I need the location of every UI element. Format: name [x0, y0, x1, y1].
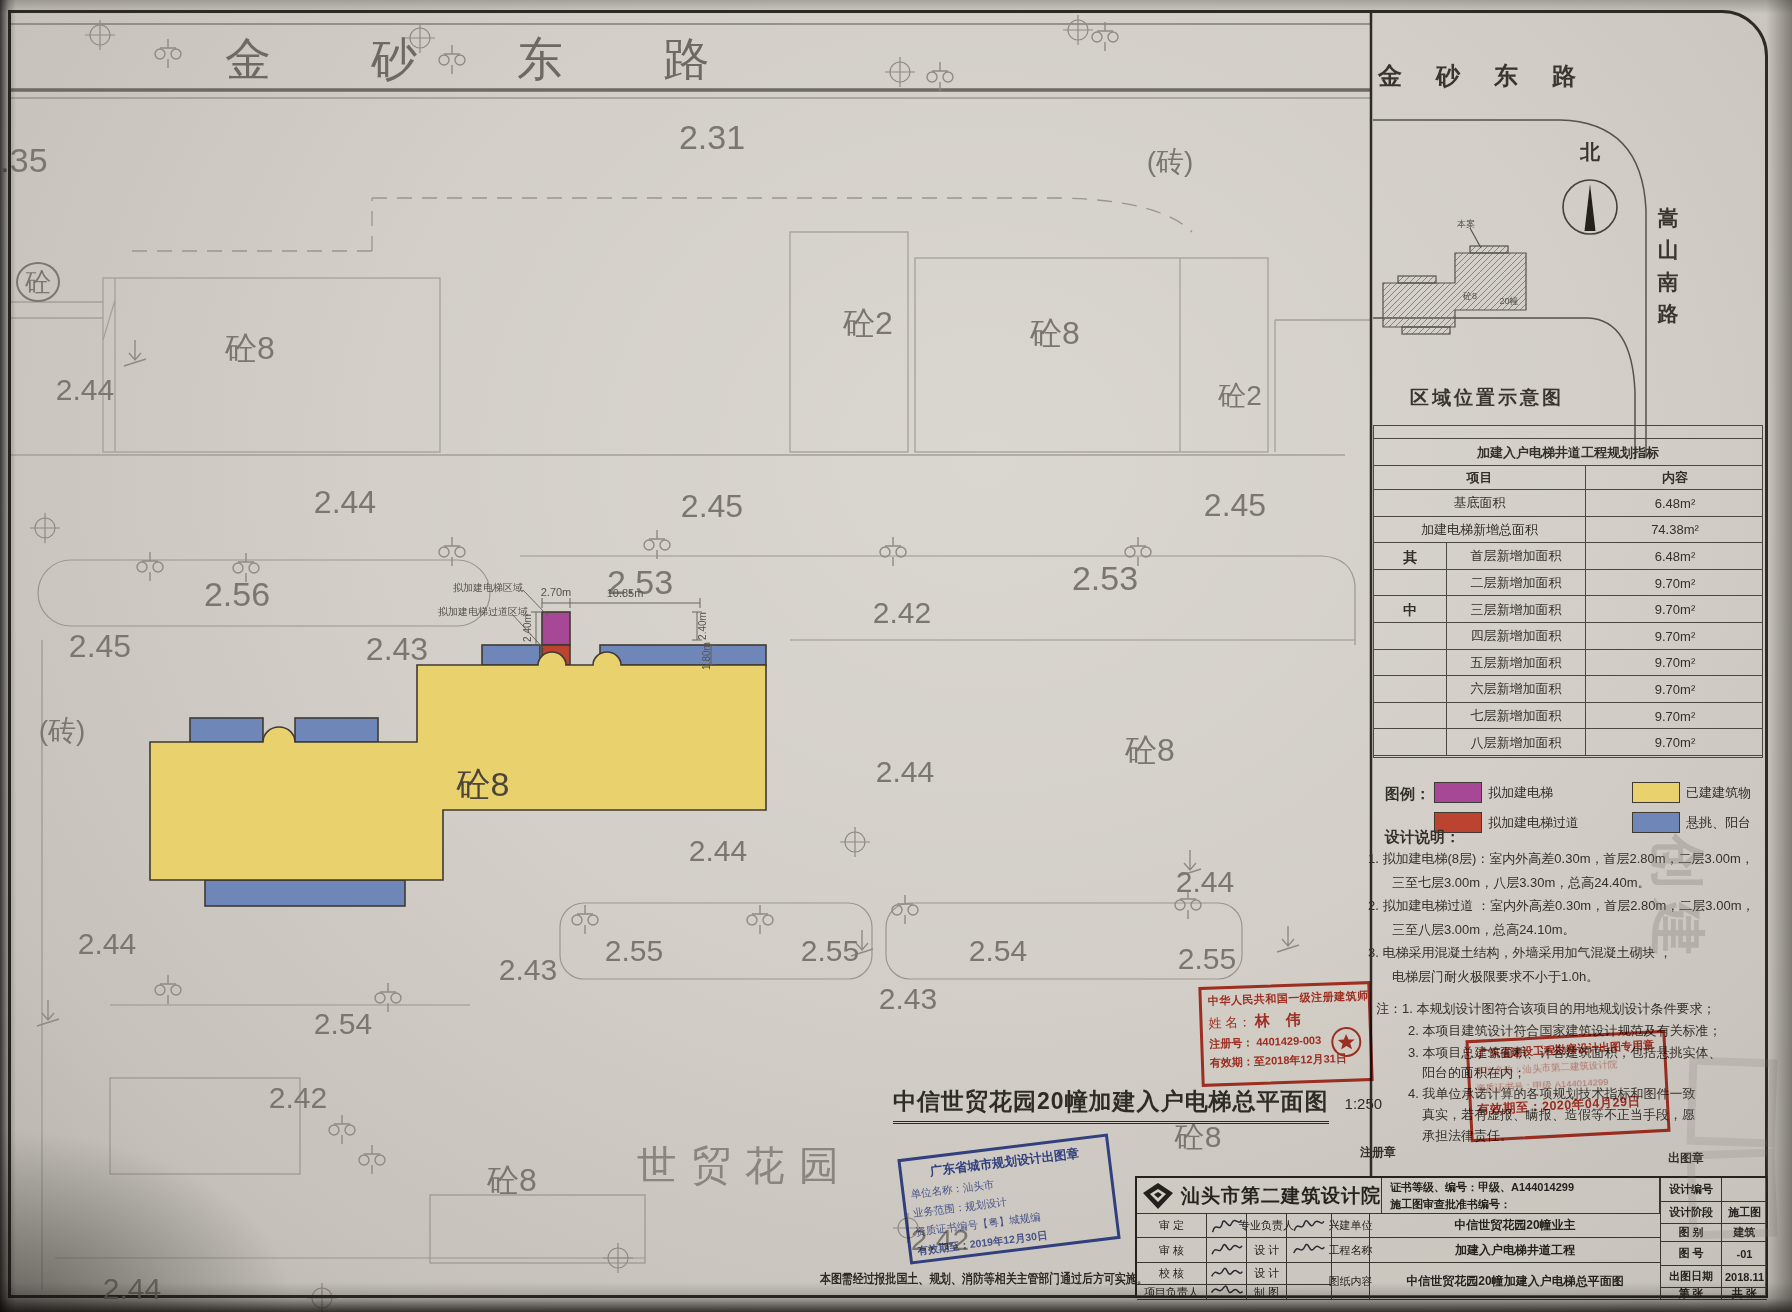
architect-registration-stamp: 中华人民共和国一级注册建筑师 姓 名： 林 伟 注册号： 4401429-003… [1198, 981, 1373, 1087]
elevation-label: 2.45 [69, 630, 131, 662]
project-field-label: 图纸内容 [1332, 1263, 1370, 1300]
project-field-label: 工程名称 [1332, 1238, 1370, 1263]
tblock-right-label: 第 张 [1660, 1288, 1722, 1300]
project-field-value: 中信世贸花园20幢加建入户电梯总平面图 [1370, 1263, 1660, 1300]
inset-site-ref: 本案 [1457, 220, 1475, 229]
table-group-label: 中 [1388, 602, 1432, 620]
stamp-line: 中华人民共和国一级注册建筑师 [1208, 988, 1362, 1008]
table-value-cell: 6.48m² [1586, 490, 1764, 517]
table-value-cell: 9.70m² [1586, 676, 1764, 703]
review-line: 施工图审查批准书编号： [1390, 1197, 1511, 1212]
design-note-line: 2. 拟加建电梯过道 ：室内外高差0.30m，首层2.80m，二层3.00m， [1368, 899, 1754, 912]
signature-scribble [1291, 1216, 1327, 1236]
elevation-label: 2.54 [314, 1009, 372, 1039]
col-header-item: 项目 [1374, 466, 1586, 490]
table-value-cell: 74.38m² [1586, 517, 1764, 544]
table-top-band [1374, 426, 1762, 439]
building-label: 砼8 [1125, 734, 1175, 766]
tblock-right-value [1722, 1178, 1767, 1202]
approval-note: 本图需经过报批国土、规划、消防等相关主管部门通过后方可实施。 [820, 1270, 1148, 1288]
elevation-label: 2.45 [681, 490, 743, 522]
inset-caption: 区域位置示意图 [1410, 388, 1564, 407]
elevation-label: 2.31 [679, 120, 745, 154]
approver-role-label: 审 核 [1137, 1238, 1207, 1263]
legend-swatch [1632, 782, 1680, 803]
legend-label: 拟加建电梯过道 [1488, 812, 1579, 833]
elevation-label: 2.44 [1176, 867, 1234, 897]
building-label: 砼8 [1175, 1122, 1222, 1152]
elevation-label: 2.56 [204, 577, 270, 611]
table-value-cell: 9.70m² [1586, 596, 1764, 623]
signature-scribble [1291, 1240, 1327, 1260]
table-row: 七层新增加面积9.70m² [1374, 703, 1762, 730]
signature-cell [1287, 1214, 1332, 1238]
elevation-label: 2.43 [366, 633, 428, 665]
dimension-label: 10.85m [607, 588, 644, 599]
elevation-label: 2.44 [314, 486, 376, 518]
table-row: 六层新增加面积9.70m² [1374, 676, 1762, 703]
stamp-validity: 有效期至：2020年04月29日 [1477, 1092, 1662, 1119]
registration-seal-caption: 注册章 [1360, 1146, 1396, 1158]
elevation-label: 2.44 [876, 757, 934, 787]
design-note-line: 电梯层门耐火极限要求不小于1.0h。 [1392, 970, 1599, 983]
signature-cell [1207, 1238, 1247, 1263]
elevation-label: 2.42 [873, 598, 931, 628]
tblock-right-value: 施工图 [1722, 1202, 1767, 1224]
table-value-cell: 9.70m² [1586, 570, 1764, 597]
table-row: 四层新增加面积9.70m² [1374, 623, 1762, 650]
table-item-cell: 六层新增加面积 [1446, 676, 1586, 703]
approver-role-label: 校 核 [1137, 1263, 1207, 1285]
signature-scribble [1209, 1240, 1245, 1260]
elevation-label: 2.42 [269, 1083, 327, 1113]
table-value-cell: 9.70m² [1586, 703, 1764, 730]
area-annotation: 拟加建电梯过道区域 [438, 607, 528, 617]
table-header-row: 项目 内容 [1374, 466, 1762, 490]
building-label: 砼8 [1030, 317, 1080, 349]
table-value-cell: 6.48m² [1586, 543, 1764, 570]
legend-swatch [1632, 812, 1680, 833]
approver-role-label: 项目负责人 [1137, 1285, 1207, 1300]
table-item-cell: 八层新增加面积 [1446, 729, 1586, 756]
design-note-line: 3. 电梯采用混凝土结构，外墙采用加气混凝土砌块 ， [1368, 946, 1672, 959]
table-item-cell: 加建电梯新增总面积 [1374, 517, 1586, 544]
cert-line: 证书等级、编号：甲级、A144014299 [1390, 1180, 1574, 1195]
tblock-right-value: -01 [1722, 1242, 1767, 1266]
round-seal-icon [1329, 1024, 1364, 1059]
tblock-right-label: 图 别 [1660, 1224, 1722, 1242]
indicator-table: 加建入户电梯井道工程规划指标 项目 内容 基底面积6.48m²加建电梯新增总面积… [1373, 425, 1763, 758]
tblock-right-label: 图 号 [1660, 1242, 1722, 1266]
table-item-cell: 基底面积 [1374, 490, 1586, 517]
inset-road-right: 嵩山南路 [1658, 190, 1679, 318]
elevation-label: .35 [0, 143, 47, 177]
drawing-title: 中信世贸花园20幢加建入户电梯总平面图 1:250 [893, 1086, 1382, 1124]
signature-scribble [1209, 1282, 1245, 1302]
table-value-cell: 9.70m² [1586, 650, 1764, 677]
elevation-label: 2.44 [78, 929, 136, 959]
table-item-cell: 四层新增加面积 [1446, 623, 1586, 650]
elevation-label: 2.45 [1204, 489, 1266, 521]
dimension-label: 2.70m [541, 587, 572, 598]
elevation-label: 2.54 [969, 936, 1027, 966]
elevation-label: 2.43 [879, 984, 937, 1014]
elevation-label: 2.44 [103, 1274, 161, 1304]
table-row: 三层新增加面积9.70m² [1374, 596, 1762, 623]
project-field-label: 兴建单位 [1332, 1214, 1370, 1238]
building-label: 砼8 [457, 767, 510, 801]
table-row: 五层新增加面积9.70m² [1374, 650, 1762, 677]
elevation-label: 2.44 [689, 836, 747, 866]
design-note-line: 1. 拟加建电梯(8层)：室内外高差0.30m，首层2.80m，二层3.00m， [1368, 852, 1754, 865]
table-item-cell: 七层新增加面积 [1446, 703, 1586, 730]
dimension-label: 2.40m [698, 612, 708, 640]
drawing-scale: 1:250 [1345, 1095, 1383, 1112]
remark-line: 注：1. 本规划设计图符合该项目的用地规划设计条件要求； [1376, 1002, 1715, 1015]
inset-building-b: 20幢 [1499, 297, 1518, 306]
table-row: 基底面积6.48m² [1374, 490, 1762, 517]
drawing-title-text: 中信世贸花园20幢加建入户电梯总平面图 [893, 1086, 1329, 1124]
building-label: 砼2 [843, 307, 893, 339]
building-label: 砼8 [487, 1164, 537, 1196]
table-row: 八层新增加面积9.70m² [1374, 729, 1762, 756]
elevation-label: 2.55 [1178, 944, 1236, 974]
institute-logo-icon [1143, 1183, 1173, 1209]
road-name-main: 金砂东路 [225, 36, 809, 82]
title-block: 汕头市第二建筑设计院 证书等级、编号：甲级、A144014299 施工图审查批准… [1135, 1176, 1768, 1298]
designer-role-label: 设 计 [1247, 1263, 1287, 1285]
stamp-name-label: 姓 名： [1208, 1014, 1251, 1030]
signature-cell [1287, 1263, 1332, 1285]
design-note-line: 三至八层3.00m，总高24.10m。 [1392, 923, 1576, 936]
elevation-label: 2.44 [56, 375, 114, 405]
table-row: 加建电梯新增总面积74.38m² [1374, 517, 1762, 544]
design-note-line: 三至七层3.00m，八层3.30m，总高24.40m。 [1392, 876, 1651, 889]
approver-role-label: 审 定 [1137, 1214, 1207, 1238]
designer-role-label: 设 计 [1247, 1238, 1287, 1263]
tblock-right-label: 设计编号 [1660, 1178, 1722, 1202]
building-label: 砼8 [225, 332, 275, 364]
table-row: 二层新增加面积9.70m² [1374, 570, 1762, 597]
building-label: 砼2 [1218, 382, 1262, 410]
elevation-label: 2.55 [801, 936, 859, 966]
designer-role-label: 制 图 [1247, 1285, 1287, 1300]
legend-swatch [1434, 782, 1482, 803]
legend-label: 已建建筑物 [1686, 782, 1751, 803]
signature-cell [1287, 1238, 1332, 1263]
legend-label: 拟加建电梯 [1488, 782, 1553, 803]
survey-design-issue-stamp: 广东省建设工程勘察设计出图专用章 单位名称：汕头市第二建筑设计院 资质证书号：甲… [1465, 1030, 1670, 1142]
project-field-value: 加建入户电梯井道工程 [1370, 1238, 1660, 1263]
signature-scribble [1209, 1264, 1245, 1284]
material-label: 砼 [16, 262, 60, 302]
table-title: 加建入户电梯井道工程规划指标 [1374, 439, 1762, 466]
inset-north-label: 北 [1580, 142, 1600, 162]
area-annotation: 拟加建电梯区域 [453, 583, 523, 593]
institute-name: 汕头市第二建筑设计院 [1181, 1183, 1381, 1209]
designer-role-label: 专业负责人 [1247, 1214, 1287, 1238]
elevation-label: 2.55 [605, 936, 663, 966]
site-name-text: 世贸花园 [637, 1145, 853, 1185]
stamp-name: 林 伟 [1254, 1010, 1307, 1029]
table-value-cell: 9.70m² [1586, 729, 1764, 756]
legend-label: 悬挑、阳台 [1686, 812, 1751, 833]
issue-seal-caption: 出图章 [1668, 1152, 1704, 1164]
table-item-cell: 二层新增加面积 [1446, 570, 1586, 597]
tblock-right-label: 设计阶段 [1660, 1202, 1722, 1224]
table-item-cell: 首层新增加面积 [1446, 543, 1586, 570]
inset-road-top: 金砂东路 [1378, 64, 1610, 88]
design-notes-heading: 设计说明： [1385, 829, 1460, 844]
table-row: 首层新增加面积6.48m² [1374, 543, 1762, 570]
col-header-content: 内容 [1586, 466, 1764, 490]
project-field-value: 中信世贸花园20幢业主 [1370, 1214, 1660, 1238]
table-group-label: 其 [1388, 549, 1432, 567]
tblock-right-value: 2018.11 [1722, 1266, 1767, 1288]
inset-building-a: 砼8 [1463, 292, 1477, 301]
material-label: (砖) [1147, 148, 1194, 176]
tblock-right-label: 出图日期 [1660, 1266, 1722, 1288]
material-label: (砖) [39, 717, 86, 745]
tblock-right-value: 建筑 [1722, 1224, 1767, 1242]
tblock-right-value: 共 张 [1722, 1288, 1767, 1300]
elevation-label: 2.43 [499, 955, 557, 985]
elevation-label: 2.53 [1072, 561, 1138, 595]
table-item-cell: 五层新增加面积 [1446, 650, 1586, 677]
legend-heading: 图例： [1385, 786, 1430, 801]
signature-cell [1207, 1285, 1247, 1300]
table-item-cell: 三层新增加面积 [1446, 596, 1586, 623]
dimension-label: 1.80m [702, 642, 712, 670]
signature-cell [1287, 1285, 1332, 1300]
dimension-label: 2.40m [523, 614, 533, 642]
scanned-site-plan-photo: 金砂东路 2.31(砖).35砼2.44砼8砼2砼8砼22.442.452.45… [0, 0, 1792, 1312]
table-value-cell: 9.70m² [1586, 623, 1764, 650]
